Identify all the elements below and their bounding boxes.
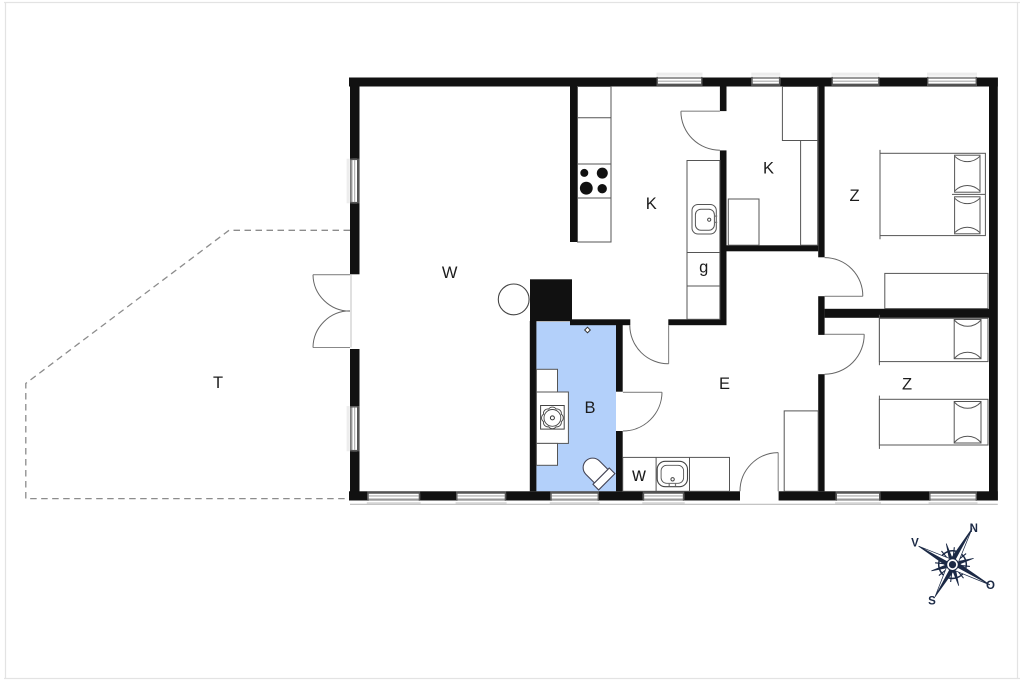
svg-text:w: w (631, 465, 646, 486)
svg-text:B: B (584, 399, 595, 417)
svg-text:E: E (719, 375, 730, 393)
svg-text:S: S (928, 595, 936, 607)
svg-text:V: V (911, 538, 919, 550)
svg-text:K: K (646, 195, 657, 213)
svg-text:N: N (970, 523, 978, 535)
svg-text:T: T (213, 374, 223, 392)
svg-text:K: K (763, 159, 774, 177)
svg-text:O: O (986, 580, 995, 592)
svg-text:g: g (699, 259, 708, 277)
svg-text:Z: Z (902, 375, 912, 393)
svg-text:W: W (442, 264, 458, 282)
svg-text:Z: Z (849, 187, 859, 205)
